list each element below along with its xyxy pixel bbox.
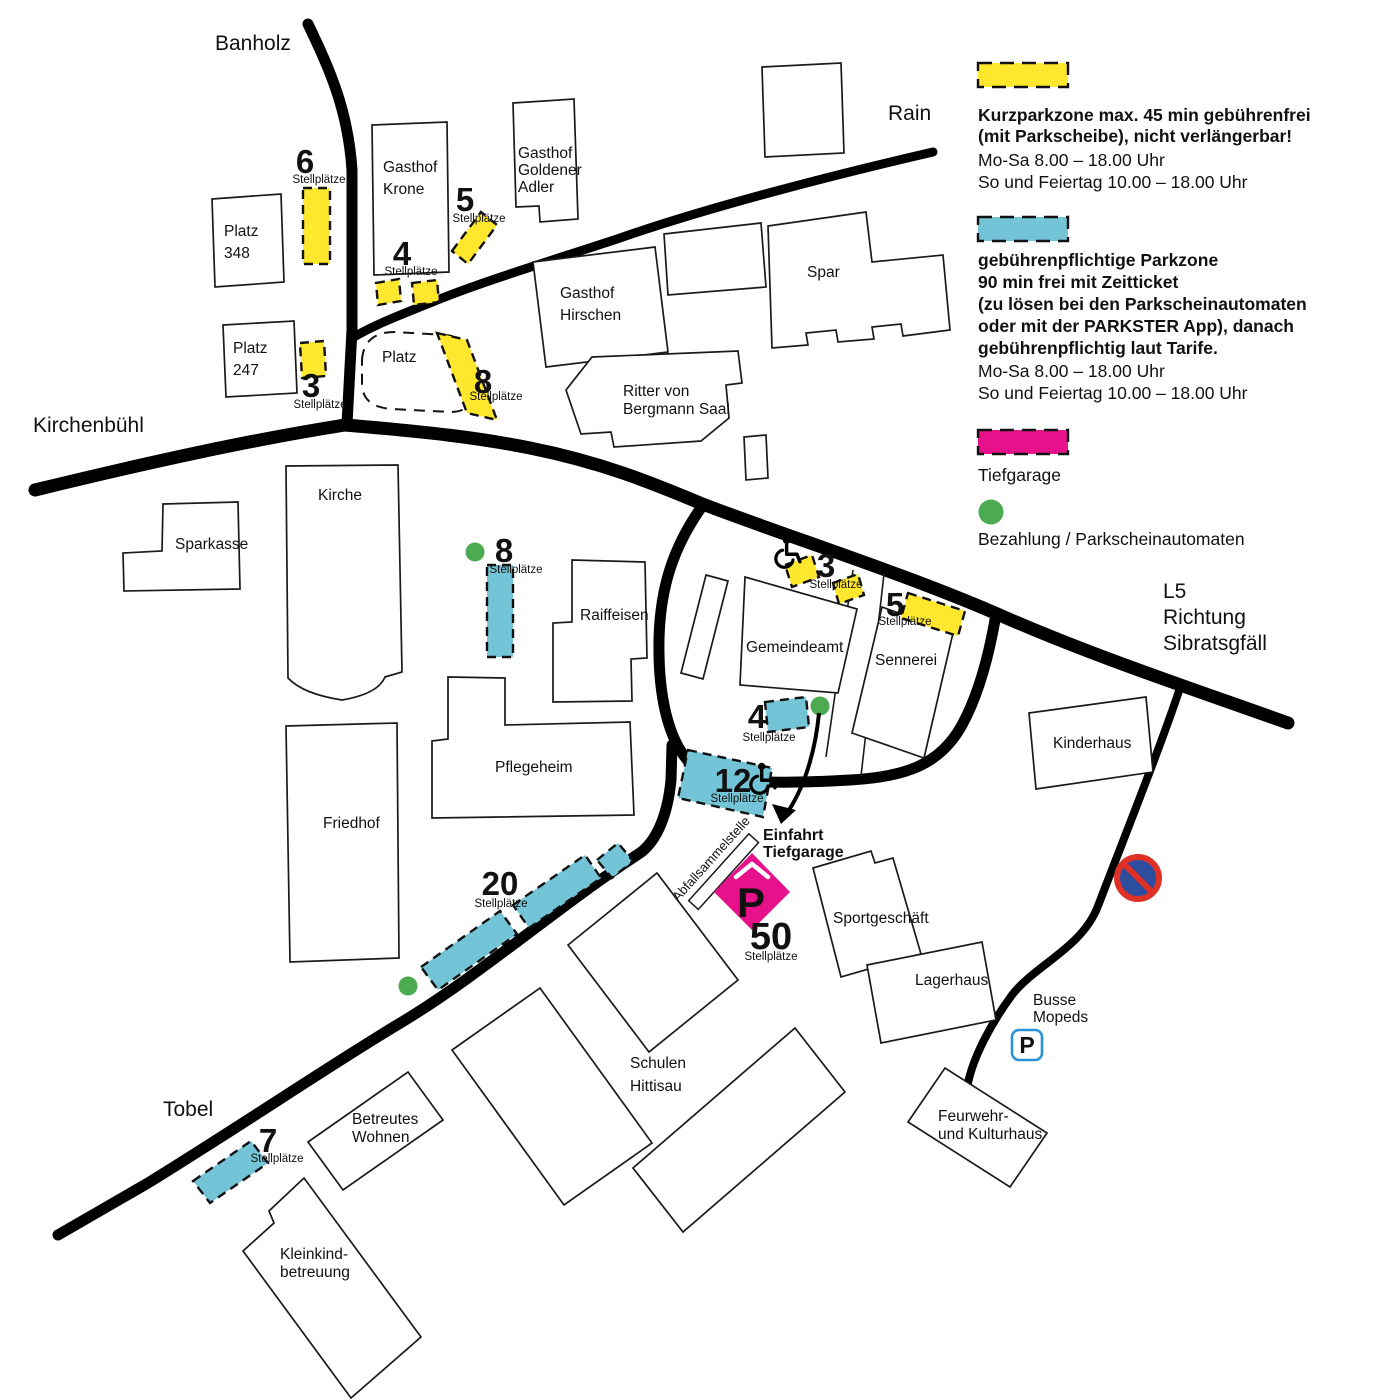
svg-text:Stellplätze: Stellplätze: [878, 616, 931, 628]
svg-text:oder mit der PARKSTER App), da: oder mit der PARKSTER App), danach: [978, 316, 1294, 336]
svg-text:Stellplätze: Stellplätze: [710, 793, 763, 805]
road-label-rain: Rain: [888, 102, 931, 125]
no-parking-icon: [1117, 857, 1159, 899]
building-schule-2: [568, 873, 738, 1052]
payment-dot-icon: [811, 697, 830, 716]
building-platz247: [223, 321, 297, 397]
svg-text:Stellplätze: Stellplätze: [250, 1153, 303, 1165]
svg-text:Sportgeschäft: Sportgeschäft: [833, 910, 929, 927]
count-parkzone-20: 20: [482, 865, 519, 902]
building-spar: [768, 212, 950, 348]
svg-text:Gasthof: Gasthof: [383, 159, 438, 176]
svg-text:Stellplätze: Stellplätze: [474, 898, 527, 910]
svg-text:Sibratsgfäll: Sibratsgfäll: [1163, 632, 1267, 655]
svg-text:90 min frei mit Zeitticket: 90 min frei mit Zeitticket: [978, 272, 1179, 292]
svg-text:Feurwehr-: Feurwehr-: [938, 1108, 1009, 1125]
legend-payment-dot-icon: [979, 500, 1004, 525]
svg-text:(zu lösen bei den Parkscheinau: (zu lösen bei den Parkscheinautomaten: [978, 294, 1307, 314]
svg-text:348: 348: [224, 245, 250, 262]
svg-text:Stellplätze: Stellplätze: [452, 213, 505, 225]
svg-text:Lagerhaus: Lagerhaus: [915, 972, 989, 989]
svg-text:Stellplätze: Stellplätze: [469, 391, 522, 403]
busse-label: Busse: [1033, 992, 1076, 1009]
svg-text:Bezahlung / Parkscheinautomate: Bezahlung / Parkscheinautomaten: [978, 529, 1245, 549]
parking-map: Banholz Rain Kirchenbühl Tobel L5 Richtu…: [0, 0, 1400, 1400]
zone-kurzpark-6: [303, 188, 330, 264]
zone-parkzone-8: [487, 565, 513, 657]
map-canvas: Banholz Rain Kirchenbühl Tobel L5 Richtu…: [0, 0, 1400, 1400]
legend-swatch-parkzone: [978, 217, 1068, 241]
building-raiffeisen: [553, 560, 647, 702]
svg-text:Raiffeisen: Raiffeisen: [580, 607, 649, 624]
road-label-kirchenbuehl: Kirchenbühl: [33, 414, 144, 437]
svg-text:Gasthof: Gasthof: [518, 145, 573, 162]
zone-kurzpark-4b: [412, 280, 439, 305]
svg-text:(mit Parkscheibe), nicht verlä: (mit Parkscheibe), nicht verlängerbar!: [978, 126, 1292, 146]
svg-text:Spar: Spar: [807, 264, 840, 281]
svg-text:L5: L5: [1163, 580, 1186, 603]
svg-text:gebührenpflichtige Parkzone: gebührenpflichtige Parkzone: [978, 250, 1218, 270]
svg-text:Stellplätze: Stellplätze: [809, 579, 862, 591]
svg-text:Pflegeheim: Pflegeheim: [495, 759, 573, 776]
building-unlabeled-small: [744, 435, 768, 480]
svg-text:Stellplätze: Stellplätze: [742, 732, 795, 744]
svg-text:Stellplätze: Stellplätze: [744, 951, 797, 963]
legend-swatch-tiefgarage: [978, 430, 1068, 454]
payment-dot-icon: [399, 977, 418, 996]
svg-text:Kleinkind-: Kleinkind-: [280, 1246, 348, 1263]
svg-text:Betreutes: Betreutes: [352, 1111, 419, 1128]
svg-text:Adler: Adler: [518, 179, 554, 196]
building-strip-gemeindeamt: [681, 575, 728, 679]
svg-text:Stellplätze: Stellplätze: [293, 399, 346, 411]
svg-text:Hirschen: Hirschen: [560, 307, 621, 324]
road-label-l5: L5 Richtung Sibratsgfäll: [1163, 580, 1267, 655]
building-unlabeled-top: [762, 63, 844, 157]
zone-kurzpark-4a: [376, 279, 401, 305]
svg-text:Platz: Platz: [224, 223, 258, 240]
svg-text:247: 247: [233, 362, 259, 379]
svg-text:Goldener: Goldener: [518, 162, 582, 179]
zone-parkzone-4: [765, 697, 809, 732]
svg-text:Sparkasse: Sparkasse: [175, 536, 248, 553]
svg-text:Sennerei: Sennerei: [875, 652, 937, 669]
svg-text:So und Feiertag 10.00 – 18.00: So und Feiertag 10.00 – 18.00 Uhr: [978, 172, 1248, 192]
svg-text:Hittisau: Hittisau: [630, 1078, 682, 1095]
svg-text:Friedhof: Friedhof: [323, 815, 381, 832]
svg-text:Platz: Platz: [233, 340, 267, 357]
building-schule-1: [452, 988, 652, 1205]
svg-text:und Kulturhaus: und Kulturhaus: [938, 1126, 1043, 1143]
svg-text:Tiefgarage: Tiefgarage: [978, 465, 1061, 485]
legend-swatch-kurzpark: [978, 63, 1068, 87]
svg-text:Mo-Sa 8.00 – 18.00 Uhr: Mo-Sa 8.00 – 18.00 Uhr: [978, 361, 1165, 381]
svg-text:P: P: [1019, 1032, 1034, 1058]
einfahrt-label: Einfahrt: [763, 827, 824, 844]
svg-text:Kirche: Kirche: [318, 487, 362, 504]
svg-text:Tiefgarage: Tiefgarage: [763, 844, 844, 861]
building-friedhof: [286, 723, 399, 962]
svg-text:Ritter von: Ritter von: [623, 383, 689, 400]
svg-text:Bergmann Saal: Bergmann Saal: [623, 401, 730, 418]
svg-text:Kinderhaus: Kinderhaus: [1053, 735, 1132, 752]
svg-text:gebührenpflichtig laut Tarife.: gebührenpflichtig laut Tarife.: [978, 338, 1218, 358]
road-label-banholz: Banholz: [215, 32, 291, 55]
svg-text:Mo-Sa 8.00 – 18.00 Uhr: Mo-Sa 8.00 – 18.00 Uhr: [978, 150, 1165, 170]
svg-text:Schulen: Schulen: [630, 1055, 686, 1072]
svg-text:Krone: Krone: [383, 181, 424, 198]
road-label-tobel: Tobel: [163, 1098, 213, 1121]
svg-text:Kurzparkzone max. 45 min gebüh: Kurzparkzone max. 45 min gebührenfrei: [978, 105, 1311, 125]
svg-text:Stellplätze: Stellplätze: [384, 266, 437, 278]
svg-text:Mopeds: Mopeds: [1033, 1009, 1088, 1026]
svg-text:betreuung: betreuung: [280, 1264, 350, 1281]
building-kleinkindbetreuung: [243, 1178, 421, 1398]
svg-text:So und Feiertag 10.00 – 18.00: So und Feiertag 10.00 – 18.00 Uhr: [978, 383, 1248, 403]
svg-text:Stellplätze: Stellplätze: [292, 174, 345, 186]
legend: Kurzparkzone max. 45 min gebührenfrei (m…: [978, 63, 1311, 549]
svg-text:Wohnen: Wohnen: [352, 1129, 409, 1146]
svg-text:Gemeindeamt: Gemeindeamt: [746, 639, 844, 656]
svg-text:Richtung: Richtung: [1163, 606, 1246, 629]
svg-text:Stellplätze: Stellplätze: [489, 564, 542, 576]
building-unlabeled-center: [664, 223, 766, 295]
platz-dashed-label: Platz: [382, 349, 416, 366]
building-platz348: [212, 194, 284, 287]
count-parkzone-4: 4: [748, 698, 767, 735]
svg-text:Gasthof: Gasthof: [560, 285, 615, 302]
payment-dot-icon: [466, 543, 485, 562]
bus-parking-sign-icon: P: [1012, 1030, 1042, 1060]
